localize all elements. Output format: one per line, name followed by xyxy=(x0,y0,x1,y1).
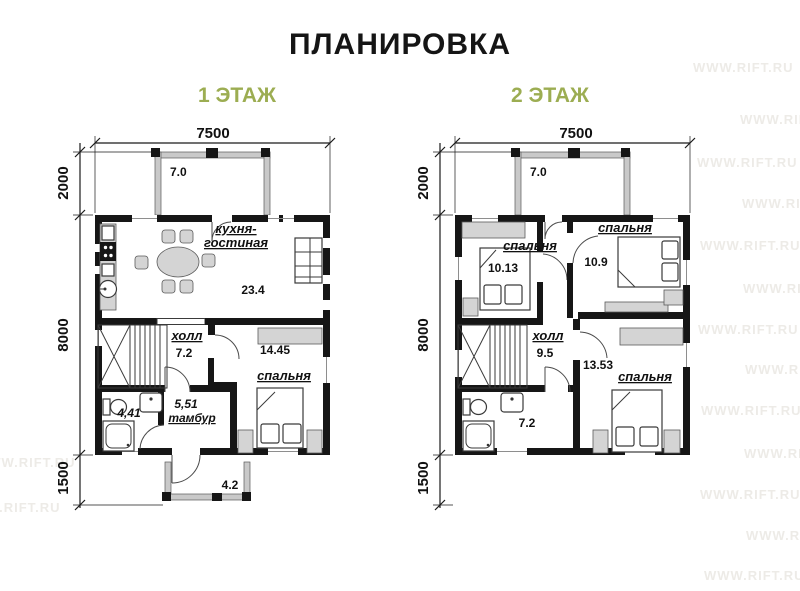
dim-side-top: 2000 xyxy=(415,166,432,199)
bedroom-bottom-name: спальня xyxy=(618,369,672,384)
floor1-bathroom-fixtures xyxy=(103,393,162,451)
dim-side-main: 8000 xyxy=(415,318,432,351)
watermark: WWW.RIFT.RU xyxy=(697,155,798,170)
watermark: WWW.RIFT.RU xyxy=(700,238,800,253)
page-title: ПЛАНИРОВКА xyxy=(0,28,800,62)
floor2-plan: 7500 2000 8000 1500 7.0 xyxy=(400,120,710,515)
washbasin-icon xyxy=(501,393,523,412)
balcony-area: 7.0 xyxy=(530,165,547,179)
bedroom-name: спальня xyxy=(257,368,311,383)
floor2-bedroom-right-furniture xyxy=(605,237,683,312)
floor2-bathroom-fixtures xyxy=(463,393,523,451)
dining-table xyxy=(157,247,199,277)
watermark: WWW.RIFT.RU xyxy=(698,322,799,337)
bathroom-area: 4,41 xyxy=(116,406,141,420)
stove-icon xyxy=(100,242,116,261)
bedroom-left-name: спальня xyxy=(503,238,557,253)
washbasin-icon xyxy=(140,393,162,412)
hall-area: 9.5 xyxy=(537,346,554,360)
dim-width: 7500 xyxy=(196,125,229,142)
hall-name: холл xyxy=(170,328,202,343)
footer: RIFT ДЕРЕВЯННЫЕ ДОМА И БАНИ № XL-10 Дом … xyxy=(0,518,800,588)
floor1-stairs xyxy=(98,325,167,388)
bedroom-bottom-area: 13.53 xyxy=(583,358,613,372)
bedroom-area: 14.45 xyxy=(260,343,290,357)
bedroom-right-area: 10.9 xyxy=(584,255,608,269)
dim-width: 7500 xyxy=(559,125,592,142)
watermark: WWW.RIFT.RU xyxy=(701,403,800,418)
dim-side-top: 2000 xyxy=(55,166,72,199)
floor1-heading: 1 ЭТАЖ xyxy=(137,84,337,108)
terrace-area: 7.0 xyxy=(170,165,187,179)
bathroom-area: 7.2 xyxy=(519,416,536,430)
kitchen-name-2: гостиная xyxy=(204,235,268,250)
kitchen-area: 23.4 xyxy=(241,283,265,297)
floor1-plan: 7500 2000 8000 1500 7.0 xyxy=(40,120,350,515)
floor2-heading: 2 ЭТАЖ xyxy=(450,84,650,108)
porch-area: 4.2 xyxy=(222,478,239,492)
watermark: WWW.RIFT.RU xyxy=(740,112,800,127)
floor1-terrace: 7.0 xyxy=(151,148,270,215)
bedroom-left-area: 10.13 xyxy=(488,261,518,275)
hall-name: холл xyxy=(531,328,563,343)
watermark: WWW.RIFT.RU xyxy=(744,446,800,461)
watermark: WWW.RIFT.RU xyxy=(700,487,800,502)
hall-area: 7.2 xyxy=(176,346,193,360)
floor2-balcony: 7.0 xyxy=(511,148,630,215)
dim-side-main: 8000 xyxy=(55,318,72,351)
watermark: WWW.RIFT.RU xyxy=(743,281,800,296)
sofa xyxy=(295,238,322,283)
vestibule-area: 5,51 xyxy=(174,397,198,411)
watermark: WWW.RIFT.RU xyxy=(693,60,794,75)
vestibule-name: тамбур xyxy=(168,411,215,425)
floor-plan-sheet: WWW.RIFT.RU WWW.RIFT.RU WWW.RIFT.RU WWW.… xyxy=(0,0,800,591)
dim-side-bottom: 1500 xyxy=(415,461,432,494)
watermark: WWW.RIFT.RU xyxy=(745,362,800,377)
bedroom-right-name: спальня xyxy=(598,220,652,235)
kitchen-name-1: кухня- xyxy=(215,221,256,236)
toilet-icon xyxy=(463,399,470,415)
watermark: WWW.RIFT.RU xyxy=(742,196,800,211)
floor1-porch: 4.2 xyxy=(162,462,251,501)
floor2-bedroom-bottom-furniture xyxy=(593,328,683,453)
dim-side-bottom: 1500 xyxy=(55,461,72,494)
toilet-icon xyxy=(103,399,110,415)
floor2-stairs xyxy=(458,325,527,388)
